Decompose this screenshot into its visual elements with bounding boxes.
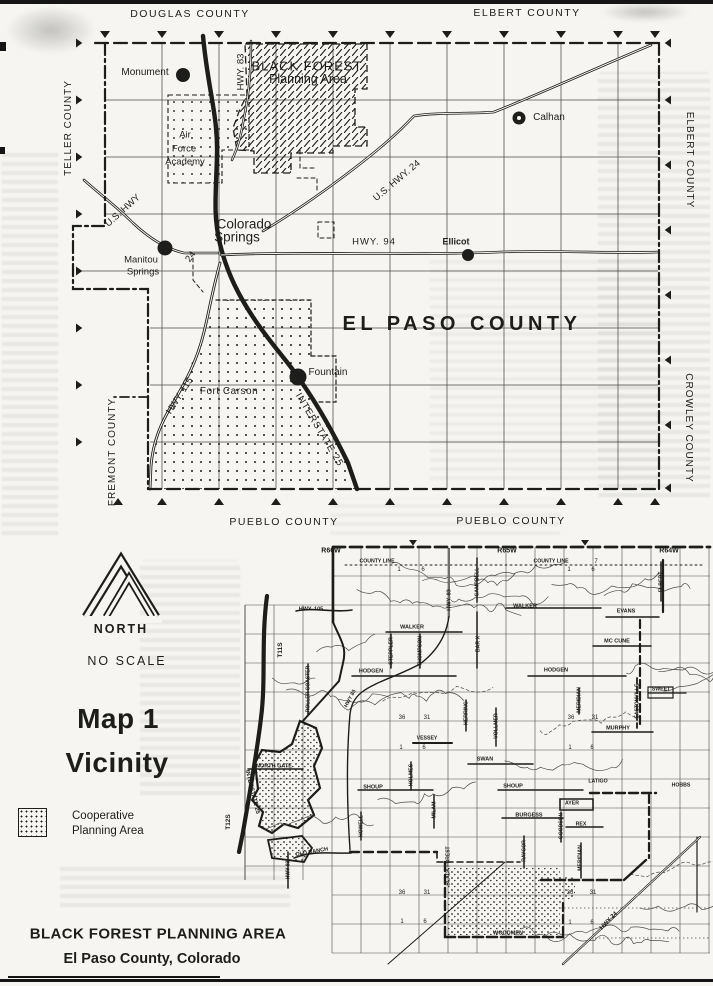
road-label-mccune: MC CUNE bbox=[604, 639, 630, 645]
road-label-walker-1: WALKER bbox=[400, 625, 424, 631]
section-number: 6 bbox=[422, 745, 425, 751]
section-number: 36 bbox=[399, 715, 406, 721]
road-label-thompson: THOMPSON bbox=[418, 636, 423, 666]
area-label-black-forest-2: Planning Area bbox=[269, 73, 347, 86]
road-label-latigo: LATIGO bbox=[588, 779, 607, 784]
road-label-vessey: VESSEY bbox=[417, 736, 438, 741]
road-label-us-hwy-24-west: U.S. HWY bbox=[104, 193, 143, 229]
section-number: 31 bbox=[590, 890, 597, 896]
county-label-elbert-top: ELBERT COUNTY bbox=[473, 8, 580, 19]
city-label-fountain: Fountain bbox=[309, 368, 348, 378]
road-label-hwy-24-bottom: HWY 24 bbox=[599, 911, 619, 931]
road-label-meridian-2: MERIDIAN bbox=[578, 845, 583, 871]
road-label-shoup-2: SHOUP bbox=[503, 784, 523, 790]
area-label-afa-2: Force bbox=[172, 144, 196, 154]
county-label-el-paso: EL PASO COUNTY bbox=[343, 314, 582, 334]
road-label-county-line-1: COUNTY LINE bbox=[359, 559, 394, 564]
legend-label: Cooperative Planning Area bbox=[72, 809, 144, 839]
range-label-r65w: R65W bbox=[497, 548, 516, 555]
road-label-hwy-83: HWY. 83 bbox=[236, 54, 246, 91]
scan-edge-top bbox=[0, 0, 713, 4]
road-label-raygor: RAYGOR bbox=[523, 840, 528, 862]
county-label-douglas: DOUGLAS COUNTY bbox=[130, 9, 250, 20]
area-label-black-forest-1: BLACK FOREST bbox=[252, 60, 363, 73]
road-label-hwy-115: HWY. 115 bbox=[165, 376, 196, 416]
section-number: 36 bbox=[568, 715, 575, 721]
road-label-hodgen-2: HODGEN bbox=[544, 668, 568, 674]
road-label-murphy: MURPHY bbox=[606, 726, 630, 732]
section-number: 6 bbox=[591, 567, 594, 573]
section-number: 6 bbox=[590, 745, 593, 751]
footer-title: BLACK FOREST PLANNING AREA bbox=[30, 927, 287, 942]
road-label-black-forest: BLACK FOREST bbox=[447, 846, 452, 885]
scan-edge-bottom bbox=[0, 979, 713, 982]
road-label-herring: HERRING bbox=[464, 701, 469, 725]
county-label-teller: TELLER COUNTY bbox=[64, 80, 74, 176]
road-label-burgess: BURGESS bbox=[515, 813, 542, 819]
city-label-calhan: Calhan bbox=[533, 113, 565, 123]
road-label-goodson: GOODSON bbox=[560, 813, 565, 839]
map-title-line1: Map 1 bbox=[77, 705, 159, 733]
footer-subtitle: El Paso County, Colorado bbox=[64, 952, 241, 967]
legend-label-line1: Cooperative bbox=[72, 809, 144, 824]
road-label-eastonville: EASTONVILLE bbox=[636, 684, 641, 719]
road-label-north-gate: NORTH GATE bbox=[256, 764, 292, 770]
county-label-crowley: CROWLEY COUNTY bbox=[683, 373, 693, 482]
section-number: 36 bbox=[567, 890, 574, 896]
scan-mark bbox=[0, 42, 6, 51]
road-label-interstate-25-bottom: INTERSTATE 25 bbox=[244, 769, 261, 814]
road-label-meridian-1: MERIDIAN bbox=[577, 687, 582, 713]
city-label-colorado-springs-2: Springs bbox=[214, 230, 260, 244]
road-label-holmes: HOLMES bbox=[409, 764, 414, 786]
city-label-ellicot: Ellicot bbox=[442, 238, 469, 247]
section-number: 6 bbox=[590, 920, 593, 926]
scanned-map-page: DOUGLAS COUNTYELBERT COUNTYTELLER COUNTY… bbox=[0, 0, 713, 986]
road-label-interstate-25: INTERSTATE 25 bbox=[293, 392, 344, 469]
section-number: 31 bbox=[424, 890, 431, 896]
area-label-afa-1: Air bbox=[179, 130, 191, 140]
road-label-hodgen-1: HODGEN bbox=[359, 669, 383, 675]
road-label-hwy-83-top: HWY. 83 bbox=[447, 589, 453, 610]
road-label-steppler: STEPPLER bbox=[389, 637, 394, 664]
section-number: 1 bbox=[567, 567, 570, 573]
section-number: 1 bbox=[400, 919, 403, 925]
road-label-howell: HOWELL bbox=[360, 815, 365, 837]
section-number: 31 bbox=[424, 715, 431, 721]
county-label-pueblo-right: PUEBLO COUNTY bbox=[456, 516, 565, 527]
road-label-hwy-83-south: HWY 83 bbox=[287, 861, 292, 880]
road-label-hwy-83-mid: HWY 83 bbox=[344, 689, 358, 708]
road-label-elbert: ELBERT bbox=[659, 572, 664, 593]
area-label-afa-3: Academy bbox=[165, 157, 205, 167]
section-number: 6 bbox=[423, 919, 426, 925]
road-label-hwy-94: HWY. 94 bbox=[352, 237, 396, 247]
map-title-line2: Vicinity bbox=[65, 749, 168, 777]
section-number: 1 bbox=[397, 567, 400, 573]
road-label-vollmer: VOLLMER bbox=[494, 713, 499, 738]
legend-label-line2: Planning Area bbox=[72, 824, 144, 839]
road-label-hwy-105: HWY. 105 bbox=[299, 607, 323, 613]
section-number: 6 bbox=[421, 567, 424, 573]
north-label: NORTH bbox=[94, 623, 148, 636]
road-label-roller-coaster: ROLLER COASTER bbox=[307, 666, 312, 712]
section-number: 36 bbox=[399, 890, 406, 896]
road-label-milam: MILAM bbox=[432, 802, 437, 819]
township-label-t11s: T11S bbox=[278, 642, 285, 657]
road-label-rex: REX bbox=[576, 822, 587, 827]
road-label-old-ranch: OLD RANCH bbox=[295, 847, 328, 858]
road-label-ayer: AYER bbox=[565, 801, 579, 806]
scan-mark bbox=[0, 147, 5, 154]
road-label-sweet: SWEET bbox=[652, 687, 670, 692]
range-label-r64w: R64W bbox=[659, 548, 678, 555]
section-number: 1 bbox=[568, 745, 571, 751]
section-number: 1 bbox=[568, 920, 571, 926]
road-label-us-hwy-24-east: U.S. HWY. 24 bbox=[372, 159, 422, 203]
section-number: 1 bbox=[399, 745, 402, 751]
county-label-elbert-right: ELBERT COUNTY bbox=[684, 112, 694, 209]
cooperative-planning-area-swatch bbox=[18, 808, 47, 837]
road-label-24-west: 24 bbox=[184, 250, 198, 264]
county-label-pueblo-left: PUEBLO COUNTY bbox=[229, 517, 338, 528]
city-label-manitou-springs-2: Springs bbox=[127, 267, 159, 277]
road-label-evans: EVANS bbox=[617, 609, 636, 615]
road-label-county-line-2: COUNTY LINE bbox=[533, 559, 568, 564]
county-label-fremont: FREMONT COUNTY bbox=[108, 398, 118, 506]
road-label-hobbs: HOBBS bbox=[672, 783, 691, 788]
road-label-bar-x: BAR X bbox=[476, 636, 481, 652]
road-label-campbell: CAMPBELL bbox=[475, 568, 480, 597]
road-label-woodmen: WOODMEN bbox=[493, 931, 523, 937]
no-scale-label: NO SCALE bbox=[87, 655, 166, 668]
city-label-manitou-springs-1: Manitou bbox=[124, 255, 158, 265]
scan-mark bbox=[8, 976, 220, 978]
road-label-walker-2: WALKER bbox=[513, 604, 537, 610]
road-label-shoup-1: SHOUP bbox=[363, 785, 383, 791]
township-label-t12s: T12S bbox=[226, 814, 233, 830]
city-label-monument: Monument bbox=[121, 68, 168, 78]
range-label-r66w: R66W bbox=[321, 548, 340, 555]
road-label-swan: SWAN bbox=[477, 757, 494, 763]
section-number: 7 bbox=[594, 559, 597, 565]
area-label-fort-carson: Fort Carson bbox=[200, 387, 258, 397]
section-number: 31 bbox=[592, 715, 599, 721]
